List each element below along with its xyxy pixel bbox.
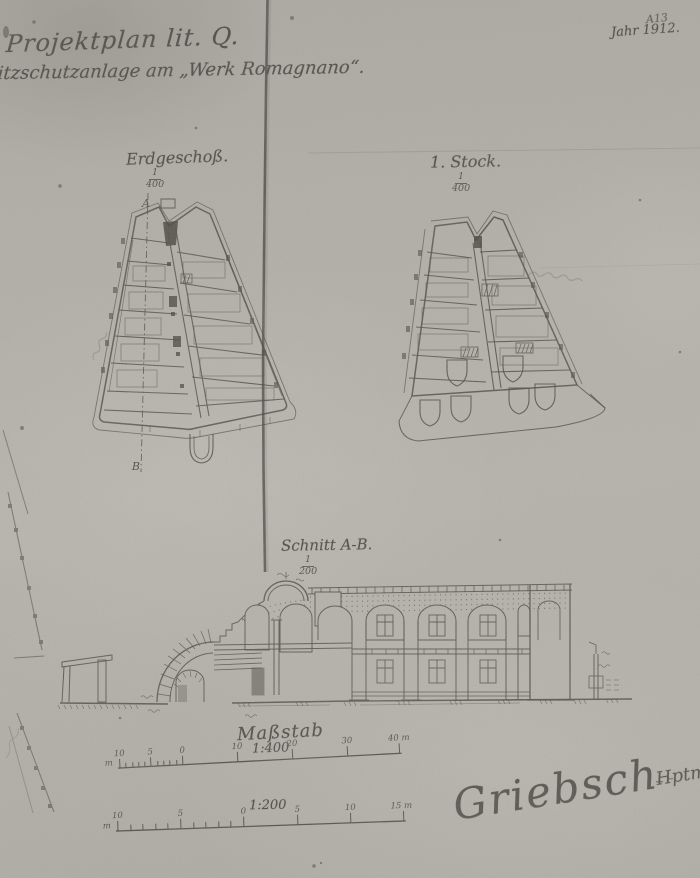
scanned-plan-page: A B <box>0 0 700 878</box>
section-label: Schnitt A-B. <box>281 535 373 555</box>
scale-200-unit: m <box>103 821 111 831</box>
section-marker-b: B <box>131 460 140 473</box>
scale-ratio-200: 1:200 <box>249 798 287 814</box>
arcade <box>318 584 574 700</box>
scale-400-tick: 0 <box>179 746 186 756</box>
ground-floor-label: Erdgeschoß. <box>126 146 229 169</box>
section-scale-fraction: 1 200 <box>299 555 317 578</box>
parapet-blocks <box>308 584 572 594</box>
section-drawing <box>58 572 632 717</box>
signature-rank: Hptm. <box>654 760 700 790</box>
scale-200-tick: 15 m <box>390 801 412 812</box>
ground-floor-scale-fraction: 1 400 <box>146 168 164 191</box>
masonry-arch-ramp <box>157 629 214 702</box>
fold-crease-lines <box>263 0 700 572</box>
scale-400-tick: 40 m <box>387 733 410 744</box>
left-margin-site-lines <box>3 430 54 813</box>
plan-artwork: A B <box>0 0 700 878</box>
scale-400-tick: 10 <box>114 749 126 760</box>
scale-ratio-400: 1:400 <box>252 740 290 756</box>
scale-200-tick: 5 <box>178 809 184 819</box>
first-floor-label: 1. Stock. <box>430 151 501 171</box>
left-retaining-wall <box>62 655 112 702</box>
section-marker-a: A <box>141 197 150 210</box>
scale-200-tick: 10 <box>345 803 357 813</box>
boundary-post <box>589 642 619 700</box>
scale-200-tick: 0 <box>241 807 247 817</box>
fraction-denominator: 400 <box>146 180 164 191</box>
scale-400-tick: 30 <box>341 736 353 747</box>
pencil-note-first-floor <box>529 265 583 289</box>
first-floor-plan-drawing <box>399 211 605 441</box>
fraction-denominator: 400 <box>452 184 470 195</box>
scale-400-tick: 5 <box>147 747 153 757</box>
section-line-ab <box>141 193 148 472</box>
elevation-annotations <box>141 579 610 717</box>
scale-400-unit: m <box>104 758 113 768</box>
first-floor-scale-fraction: 1 400 <box>452 172 470 195</box>
fraction-denominator: 200 <box>299 567 317 578</box>
scale-200-tick: 10 <box>112 811 124 821</box>
scale-200-tick: 5 <box>294 805 300 815</box>
